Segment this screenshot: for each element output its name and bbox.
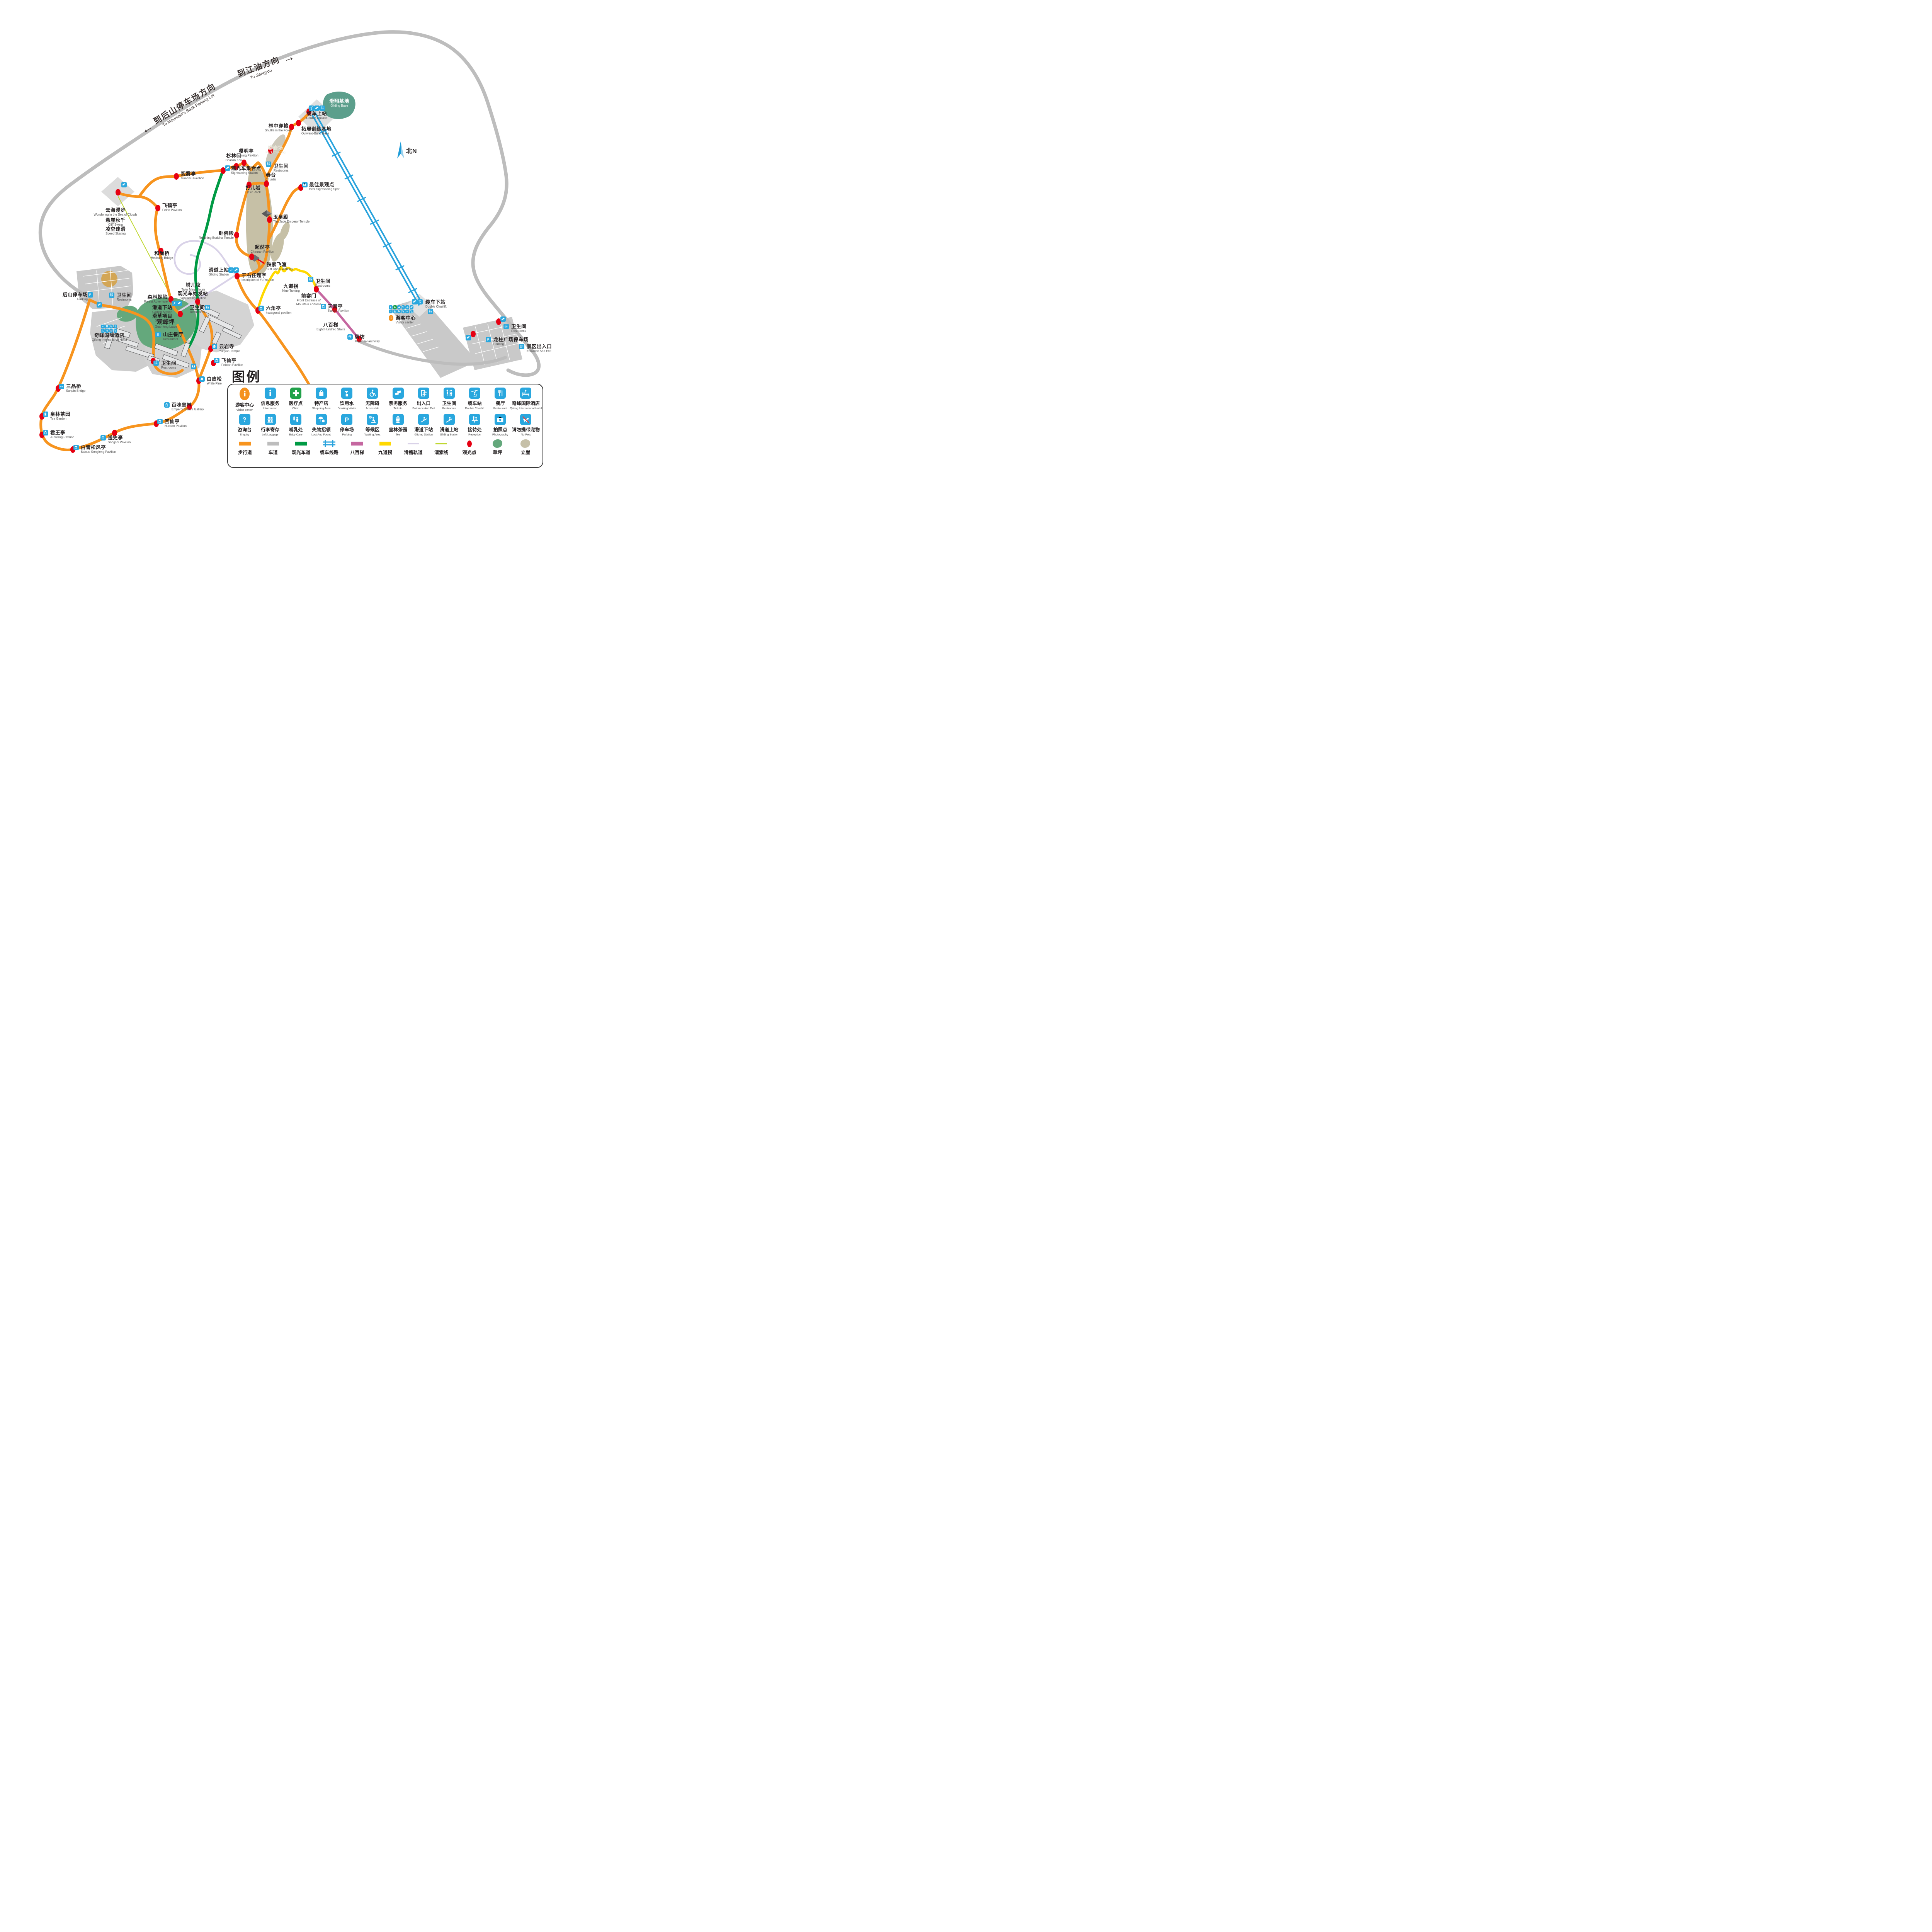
restrooms-hotel-label: 卫生间Restrooms — [161, 361, 176, 370]
sea-of-clouds-dot — [116, 189, 121, 196]
legend-item-en: Lost And Found — [311, 433, 331, 436]
legend-title: 图例 — [232, 366, 261, 385]
legend-item-en: Parking — [342, 433, 352, 436]
wc-icon — [266, 162, 271, 167]
sightseeing-station-mid-label: 观光车集合点Sightseeing Station — [231, 166, 261, 175]
legend-line-item: 九道拐 — [372, 439, 398, 456]
chairlift-icon — [309, 105, 314, 111]
visitor-center-legend-icon — [240, 388, 250, 400]
legend-line-label: 草坪 — [493, 449, 502, 456]
legend-item-en: Restrooms — [442, 406, 456, 410]
i-icon-mini — [114, 325, 117, 328]
legend-line-label: 立崖 — [521, 449, 530, 456]
legend-item-zh: 出入口 — [417, 400, 430, 406]
legend-line-item: 缆车线路 — [316, 439, 342, 456]
north-label: 北N — [406, 146, 417, 155]
legend-item: 接待处Reception — [462, 414, 488, 436]
visitor-center-icon — [389, 315, 393, 321]
sanpin-bridge-label: 三品桥Sanpin Bridge — [66, 384, 85, 393]
speed-skating-label: 凌空速滑Speed Skating — [105, 226, 126, 236]
reclining-buddha-dot — [234, 232, 239, 238]
lost-legend-icon — [316, 414, 327, 425]
legend-line-label: 溜索线 — [434, 449, 448, 456]
lost-icon-mini — [401, 310, 405, 313]
wheelchair-icon-mini — [405, 305, 409, 309]
ticket-icon — [500, 316, 506, 322]
legend-item-zh: 餐厅 — [496, 400, 505, 406]
legend-item-zh: 信息服务 — [261, 400, 279, 406]
legend-item: 拍照点Photography — [488, 414, 513, 436]
gliding-station-lower-label: 滑道下站Gliding Station — [152, 305, 172, 314]
tianyin-pavilion-label: 天音亭Tianyin Pavilion — [328, 304, 349, 313]
ticket-icon — [233, 267, 239, 273]
legend-line-item: 滑槽轨道 — [400, 439, 427, 456]
legend-item-zh: 特产店 — [315, 400, 328, 406]
fork-legend-icon — [495, 388, 506, 399]
legend-item-en: Baby Care — [289, 433, 302, 436]
legend-item-en: Restaurant — [493, 406, 507, 410]
yunyan-temple-label: 云岩寺Yunyan Temple — [219, 344, 240, 353]
feihe-pavilion-label: 飞鹤亭Feihe Pavilion — [162, 203, 182, 212]
heshang-bridge-label: 和尚桥Heshang Bridge — [151, 251, 173, 260]
restrooms-right-label: 卫生间Restrooms — [511, 324, 526, 333]
legend-line-label: 滑槽轨道 — [404, 449, 423, 456]
legend-line-label: 车道 — [269, 449, 278, 456]
legend-facility-row-1: 游客中心Visitor center信息服务Information医疗点Clin… — [232, 388, 539, 412]
legend-item-en: No Pets — [521, 433, 531, 436]
legend-item-en: Accessible — [366, 406, 379, 410]
legend-line-label: 步行道 — [238, 449, 252, 456]
grass-skiing-label: 滑草项目Grass Skiing — [152, 313, 172, 323]
legend-line-item: 观光点 — [456, 439, 483, 456]
legend-item-zh: 奇峰国际酒店 — [512, 400, 540, 406]
shuttle-in-forest-label: 林中穿梭Shuttle in the Forest — [265, 123, 293, 133]
restrooms-back-parking-label: 卫生间Restrooms — [117, 293, 132, 302]
visitor-center-label: 游客中心Visitor center — [396, 315, 416, 325]
legend-item-zh: 卫生间 — [442, 400, 456, 406]
legend-item-en: Left Luggage — [262, 433, 279, 436]
legend-line-item: 草坪 — [484, 439, 510, 456]
gliding-base-label: 滑翔基地Gliding Base — [329, 99, 349, 108]
p-icon-mini — [405, 310, 409, 313]
sea-of-clouds-label: 云海漫步Wondering in the Sea of Clouds — [94, 207, 138, 217]
line-swatch — [379, 439, 391, 448]
tea-garden-label: 皇林茶园Tea Garden — [50, 412, 70, 421]
ticket-icon-mini — [410, 305, 413, 309]
i-legend-icon — [265, 388, 276, 399]
legend-item: 失物招领Lost And Found — [309, 414, 334, 436]
best-sightseeing-spot-label: 最佳景观点Best Sightseeing Spot — [309, 182, 340, 191]
legend-item-en: Shopping Area — [312, 406, 331, 410]
legend-item-en: Waiting Area — [364, 433, 380, 436]
legend-line-label: 缆车线路 — [320, 449, 338, 456]
legend-item-zh: 票务服务 — [389, 400, 407, 406]
legend-facility-row-2: 咨询台Enquiry行李寄存Left Luggage哺乳处Baby Care失物… — [232, 414, 539, 436]
legend-line-row: 步行道车道观光车道 缆车线路八百梯九道拐滑槽轨道溜索线观光点草坪立崖 — [232, 439, 539, 456]
legend-item-zh: 无障碍 — [366, 400, 379, 406]
line-swatch — [351, 439, 363, 448]
front-entrance-fortress-label: 前寨门Front Entrance of Mountain Fortress — [296, 293, 321, 306]
legend-item: 出入口Entrance And Exit — [411, 388, 436, 412]
emperor-statue-gallery-label: 百味皇林Emperor Statue Gallery — [172, 402, 204, 412]
guanwu-pavilion-dot — [174, 173, 179, 180]
legend-item-en: Entrance And Exit — [412, 406, 435, 410]
feihe-pavilion-dot — [155, 205, 160, 211]
cup-icon — [43, 412, 48, 417]
exit-icon — [519, 344, 524, 349]
legend-item: 餐厅Restaurant — [488, 388, 513, 412]
legend-item-zh: 饮用水 — [340, 400, 354, 406]
pavilion-icon — [321, 304, 326, 309]
chaoran-pavilion-label: 超然亭Chaoran Pavilion — [251, 245, 274, 254]
pavilion-icon — [157, 419, 163, 424]
reception-legend-icon — [469, 414, 480, 425]
chaoran-pavilion-dot — [249, 253, 254, 260]
legend-item-zh: 医疗点 — [289, 400, 303, 406]
legend-item: 等候区Waiting Area — [360, 414, 385, 436]
legend-item-zh: 接待处 — [468, 426, 482, 433]
bridge-icon — [59, 384, 64, 389]
exit-legend-icon — [418, 388, 429, 399]
feixian-pavilion-label: 飞仙亭Feixian Pavilion — [221, 358, 243, 367]
legend-item-en: Double Chairlift — [465, 406, 485, 410]
luggage-legend-icon — [265, 414, 276, 425]
songshi-pavilion-label: 送史亭Songshi Pavilion — [108, 435, 131, 444]
legend-item: 滑道上站Gliding Station — [436, 414, 462, 436]
wc-icon — [109, 293, 114, 298]
legend-item-zh: 请勿携带宠物 — [512, 426, 540, 433]
memorial-archway-label: 牌坊Memorial archway — [355, 334, 380, 344]
chairlift-legend-icon — [469, 388, 480, 399]
legend-item-zh: 缆车站 — [468, 400, 482, 406]
white-pine-label: 白皮松White Pine — [207, 376, 222, 386]
line-swatch — [520, 439, 530, 448]
legend-line-label: 八百梯 — [350, 449, 364, 456]
legend-item: 卫生间Restrooms — [436, 388, 462, 412]
qifeng-hotel-label: 奇峰国际酒店Qifeng International Hotel — [92, 333, 127, 342]
wc-icon — [503, 324, 509, 329]
legend-item: 奇峰国际酒店Qifeng International Hotel — [513, 388, 539, 412]
tree-icon — [199, 376, 205, 382]
legend-item-en: Photography — [492, 433, 508, 436]
legend-item: 停车场Parking — [334, 414, 360, 436]
i-icon-mini — [389, 305, 393, 309]
huixian-pavilion-label: 回仙亭Huixian Pavilion — [165, 419, 187, 428]
scenic-area-map: ? P — [0, 0, 606, 487]
p-legend-icon — [341, 414, 352, 425]
ticket-icon — [225, 165, 230, 171]
ticket-icon — [466, 335, 471, 340]
nopets-icon-mini — [109, 329, 113, 333]
legend-item: 皇林茶园Tea — [385, 414, 411, 436]
slide-legend-icon — [418, 414, 429, 425]
cable-bottom-station-label: 缆车下站Double Chairlift — [425, 299, 447, 309]
pavilion-icon — [259, 306, 264, 311]
cup-legend-icon — [393, 414, 404, 425]
legend-line-item: 步行道 — [232, 439, 258, 456]
legend-item: 咨询台Enquiry — [232, 414, 257, 436]
pavilion-icon — [43, 430, 48, 435]
pavilion-icon — [100, 435, 106, 440]
bag-icon-mini — [397, 305, 401, 309]
cliff-swing-label: 悬崖秋千Cliff Swing — [105, 218, 126, 227]
restrooms-top-label: 卫生间Restrooms — [274, 163, 289, 173]
guanwu-pavilion-label: 观雾亭Guanwu Pavilion — [181, 171, 204, 180]
legend-item: 行李寄存Left Luggage — [257, 414, 283, 436]
p-icon-mini — [101, 325, 105, 328]
legend-panel: 游客中心Visitor center信息服务Information医疗点Clin… — [227, 384, 543, 468]
legend-line-item: 车道 — [260, 439, 286, 456]
outward-bound-base-label: 拓展训练基地Outward-Bund Base — [301, 126, 332, 136]
legend-item: 游客中心Visitor center — [232, 388, 257, 412]
legend-item-zh: 游客中心 — [235, 401, 254, 408]
fork-icon-mini — [105, 329, 109, 333]
q-legend-icon — [239, 414, 250, 425]
legend-item-en: Tea — [396, 433, 400, 436]
baby-legend-icon — [290, 414, 301, 425]
jade-emperor-temple-label: 玉皇殿The Jade Emperor Temple — [273, 214, 310, 224]
legend-item: 哺乳处Baby Care — [283, 414, 308, 436]
legend-item: 信息服务Information — [257, 388, 283, 412]
legend-item: 票务服务Tickets — [385, 388, 411, 412]
legend-item: 滑道下站Gliding Station — [411, 414, 436, 436]
ticket-icon — [121, 182, 127, 187]
junwang-pavilion-label: 君王亭Junwang Pavilion — [50, 430, 74, 439]
q-icon-mini — [389, 310, 393, 313]
rock-climbing-label: 攀岩场Rock Climbing — [265, 145, 286, 155]
legend-line-item: 溜索线 — [428, 439, 454, 456]
legend-item-en: Reception — [468, 433, 481, 436]
restrooms-temple-label: 卫生间Restrooms — [190, 305, 205, 314]
luggage-icon-mini — [393, 310, 397, 313]
p-icon — [88, 292, 93, 298]
wc-icon — [205, 305, 210, 310]
forest-adventure-label: 森林探险Forest Adventure — [144, 294, 168, 304]
ticket-icon — [97, 302, 102, 308]
legend-item-en: Qifeng International Hotel — [510, 406, 542, 410]
bed-legend-icon — [520, 388, 531, 399]
water-icon-mini — [401, 305, 405, 309]
legend-item: 缆车站Double Chairlift — [462, 388, 488, 412]
chuntai-label: 春台Chuntai — [265, 172, 276, 182]
yu-youren-inscription-label: 于右任题字Inscription of Yu Youren — [241, 273, 274, 282]
ticket-icon — [314, 105, 320, 111]
legend-line-label: 九道拐 — [378, 449, 392, 456]
legend-item-en: Information — [263, 406, 277, 410]
nopets-legend-icon — [520, 414, 531, 425]
temple-icon — [212, 344, 217, 349]
legend-item-zh: 皇林茶园 — [389, 426, 407, 433]
legend-item-en: Clinic — [292, 406, 299, 410]
legend-item: 无障碍Accessible — [360, 388, 385, 412]
ticket-icon — [177, 301, 182, 306]
cliff-chain-walking-label: 铁索飞渡Cliff Chain Walking — [267, 262, 293, 271]
wc-icon — [428, 309, 433, 314]
hexagonal-pavilion-label: 六角亭hexagonal pavilion — [266, 306, 291, 315]
chairlift-icon — [417, 299, 423, 304]
wc-icon — [320, 105, 325, 111]
legend-item-zh: 滑道上站 — [440, 426, 458, 433]
jade-emperor-temple-dot — [267, 216, 272, 223]
wait-icon-mini — [410, 310, 413, 313]
legend-line-item: 八百梯 — [344, 439, 370, 456]
line-swatch — [493, 439, 502, 448]
p-icon — [486, 337, 491, 342]
restaurant-label: 山庄餐厅Restaurant — [163, 332, 183, 341]
legend-item-zh: 停车场 — [340, 426, 354, 433]
nine-turning-label: 九道拐Nine Turning — [282, 284, 299, 293]
legend-item-en: Drinking Water — [338, 406, 356, 410]
line-swatch — [408, 439, 419, 448]
legend-item: 饮用水Drinking Water — [334, 388, 360, 412]
wait-legend-icon — [367, 414, 378, 425]
baixue-songfeng-pavilion-label: 白雪松风亭Baixue Songfeng Pavilion — [81, 445, 116, 454]
legend-item-zh: 等候区 — [366, 426, 379, 433]
wc-icon-mini — [105, 325, 109, 328]
bed-icon-mini — [101, 329, 105, 333]
legend-line-item: 观光车道 — [288, 439, 314, 456]
legend-item-en: Gliding Station — [440, 433, 458, 436]
fork-icon — [155, 332, 161, 337]
legend-item-en: Enquiry — [240, 433, 250, 436]
slide-icon — [172, 301, 177, 306]
legend-line-label: 观光点 — [463, 449, 476, 456]
sightseeing-start-station-label: 观光车始发站Sightseeing Station — [178, 291, 208, 300]
wc-legend-icon — [444, 388, 455, 399]
legend-item-en: Gliding Station — [414, 433, 432, 436]
pavilion-icon — [164, 402, 170, 408]
slide-icon — [228, 267, 234, 273]
camera-legend-icon — [495, 414, 506, 425]
pavilion-icon — [214, 358, 219, 363]
plus-icon-mini — [393, 305, 397, 309]
legend-item-zh: 行李寄存 — [261, 426, 279, 433]
reception-icon-mini — [109, 325, 113, 328]
legend-item-zh: 哺乳处 — [289, 426, 303, 433]
legend-item: 医疗点Clinic — [283, 388, 308, 412]
bag-legend-icon — [316, 388, 327, 399]
ticket-icon — [412, 299, 417, 304]
restrooms-nine-turning-label: 卫生间Restrooms — [315, 279, 330, 288]
sight-spot-swatch — [467, 439, 472, 448]
water-legend-icon — [341, 388, 352, 399]
wc-icon — [308, 277, 313, 282]
gliding-station-upper-label: 滑道上站Gliding Station — [209, 267, 229, 277]
daer-rock-label: 打儿岩Da’er Rock — [245, 185, 261, 194]
taer-mausoleum-label: 塔儿坟Ta’er Mausoleum — [182, 282, 205, 292]
wheelchair-legend-icon — [367, 388, 378, 399]
ticket-spot-lower-dot — [471, 331, 476, 337]
back-parking-label: 后山停车场Parking — [63, 292, 88, 301]
gliding-station-upper-dot — [235, 273, 240, 279]
camera-icon — [191, 364, 196, 369]
legend-item: 请勿携带宠物No Pets — [513, 414, 539, 436]
cable-top-station-label: 缆车上站Double Chairlift — [306, 111, 328, 120]
eight-hundred-stairs-label: 八百梯Eight Hundred Stairs — [316, 322, 345, 332]
line-swatch — [322, 439, 336, 448]
legend-item-zh: 咨询台 — [238, 426, 252, 433]
legend-line-item: 立崖 — [512, 439, 539, 456]
plus-legend-icon — [290, 388, 301, 399]
legend-item-en: Visitor center — [236, 408, 253, 412]
legend-item-zh: 滑道下站 — [414, 426, 433, 433]
legend-item-zh: 失物招领 — [312, 426, 331, 433]
camera-icon — [302, 182, 308, 187]
pavilion-icon — [73, 445, 79, 450]
legend-item-en: Tickets — [394, 406, 403, 410]
entrance-exit-label: 景区出入口Entrance And Exit — [527, 344, 552, 353]
line-swatch — [239, 439, 251, 448]
reclining-buddha-label: 卧佛殿Reclining Buddha Temple — [199, 231, 234, 240]
ticket-legend-icon — [393, 388, 404, 399]
line-swatch — [435, 439, 447, 448]
line-swatch — [267, 439, 279, 448]
wc-icon — [153, 361, 159, 366]
legend-item: 特产店Shopping Area — [309, 388, 334, 412]
shanlin-kou-label: 杉林口Shanlin Kou — [225, 153, 242, 162]
legend-item-zh: 拍照点 — [493, 426, 507, 433]
outward-bound-base-dot — [296, 120, 301, 126]
line-swatch — [295, 439, 307, 448]
gliding-station-lower-dot — [178, 311, 183, 317]
baby-icon-mini — [397, 310, 401, 313]
arch-icon — [347, 334, 353, 340]
legend-line-label: 观光车道 — [292, 449, 310, 456]
wait-icon-mini — [114, 329, 117, 333]
slide-legend-icon — [444, 414, 455, 425]
